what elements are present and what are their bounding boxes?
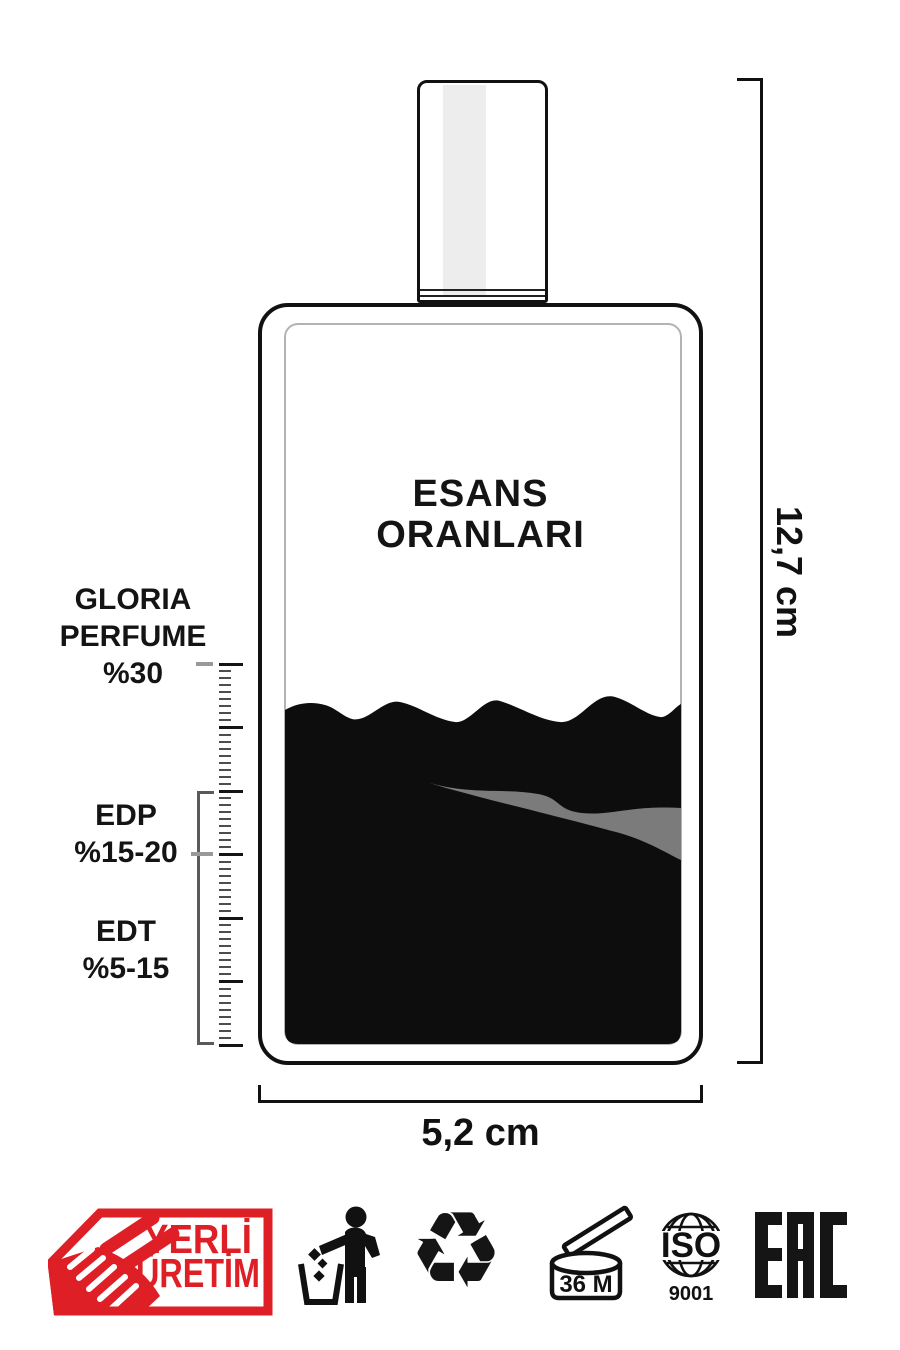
range-bracket-bottom-cap: [197, 1042, 214, 1045]
ruler-minor-tick: [219, 734, 231, 736]
recycle-icon: ♻: [398, 1192, 514, 1310]
range-bracket-mid-divider: [191, 852, 213, 856]
yerli-uretim-badge: YERLİ ÜRETİM: [48, 1203, 274, 1321]
label-gloria-perfume-30: GLORIA PERFUME %30: [30, 581, 236, 692]
ruler-minor-tick: [219, 959, 231, 961]
ruler-minor-tick: [219, 1016, 231, 1018]
ruler-minor-tick: [219, 691, 231, 693]
pao-lid: [563, 1207, 631, 1256]
pao-label: 36 M: [559, 1271, 612, 1298]
ruler-minor-tick: [219, 945, 231, 947]
ruler-minor-tick: [219, 719, 231, 721]
ruler-minor-tick: [219, 670, 231, 672]
ruler-minor-tick: [219, 839, 231, 841]
title-line-2: ORANLARI: [258, 515, 703, 556]
height-dimension-line: [760, 78, 763, 1064]
iso-label: ISO: [661, 1226, 721, 1265]
pao-jar-rim: [552, 1253, 620, 1273]
height-dimension-label: 12,7 cm: [769, 492, 809, 652]
ruler-minor-tick: [219, 1030, 231, 1032]
range-bracket-line: [197, 791, 200, 1045]
bottle-cap: [417, 80, 548, 303]
ruler-major-tick: [219, 980, 243, 983]
ruler-minor-tick: [219, 882, 231, 884]
ruler-minor-tick: [219, 924, 231, 926]
ruler-minor-tick: [219, 811, 231, 813]
ruler-minor-tick: [219, 988, 231, 990]
ruler-minor-tick: [219, 846, 231, 848]
cap-collar-line: [420, 295, 545, 297]
ruler-minor-tick: [219, 1023, 231, 1025]
cap-highlight-stripe: [443, 85, 486, 297]
tidyman-person: [308, 1207, 380, 1304]
ruler-minor-tick: [219, 748, 231, 750]
cap-collar-line: [420, 289, 545, 291]
ruler-minor-tick: [219, 1009, 231, 1011]
eac-icon: [755, 1212, 847, 1300]
ruler-minor-tick: [219, 966, 231, 968]
gloria-line-3: %30: [30, 655, 236, 692]
ruler-minor-tick: [219, 910, 231, 912]
liquid-fill: [285, 324, 681, 1044]
width-dimension-right-tick: [700, 1085, 703, 1103]
width-dimension-line: [258, 1100, 703, 1103]
percent30-level-marker: [196, 662, 213, 666]
ruler-minor-tick: [219, 684, 231, 686]
ruler-major-tick: [219, 726, 243, 729]
ruler-minor-tick: [219, 832, 231, 834]
ruler-minor-tick: [219, 769, 231, 771]
edt-line-2: %5-15: [30, 950, 222, 987]
ruler-major-tick: [219, 853, 243, 856]
edt-line-1: EDT: [30, 913, 222, 950]
ruler-minor-tick: [219, 938, 231, 940]
tidyman-bin: [301, 1264, 341, 1302]
ruler-minor-tick: [219, 896, 231, 898]
infographic-canvas: ESANS ORANLARI GLORIA PERFUME %30 EDP %1…: [0, 0, 900, 1350]
ruler-minor-tick: [219, 995, 231, 997]
period-after-opening-icon: 36 M: [538, 1205, 638, 1305]
ruler-minor-tick: [219, 931, 231, 933]
edp-line-1: EDP: [30, 797, 222, 834]
ruler-major-tick: [219, 790, 243, 793]
ruler-minor-tick: [219, 868, 231, 870]
iso-9001-icon: ISO 9001: [650, 1207, 732, 1303]
ruler-minor-tick: [219, 1002, 231, 1004]
ruler-minor-tick: [219, 776, 231, 778]
title-line-1: ESANS: [258, 474, 703, 515]
ruler-minor-tick: [219, 875, 231, 877]
ruler-minor-tick: [219, 698, 231, 700]
ruler-minor-tick: [219, 973, 231, 975]
ruler-minor-tick: [219, 804, 231, 806]
ruler-minor-tick: [219, 705, 231, 707]
iso-9001-label: 9001: [669, 1283, 714, 1303]
range-bracket-top-cap: [197, 791, 214, 794]
gloria-line-2: PERFUME: [30, 618, 236, 655]
ruler-minor-tick: [219, 1037, 231, 1039]
label-edt-5-15: EDT %5-15: [30, 913, 222, 987]
eac-letters: [755, 1212, 847, 1298]
liquid-wave-shape: [285, 696, 681, 1044]
ruler-minor-tick: [219, 755, 231, 757]
label-edp-15-20: EDP %15-20: [30, 797, 222, 871]
height-dimension-top-tick: [737, 78, 763, 81]
width-dimension-left-tick: [258, 1085, 261, 1103]
ruler-minor-tick: [219, 677, 231, 679]
ruler-minor-tick: [219, 861, 231, 863]
ruler-minor-tick: [219, 889, 231, 891]
ruler-minor-tick: [219, 783, 231, 785]
ruler-minor-tick: [219, 712, 231, 714]
ruler-minor-tick: [219, 952, 231, 954]
ruler-minor-tick: [219, 903, 231, 905]
ruler-minor-tick: [219, 818, 231, 820]
ruler-minor-tick: [219, 741, 231, 743]
width-dimension-label: 5,2 cm: [258, 1112, 703, 1155]
height-dimension-bottom-tick: [737, 1061, 763, 1064]
badge-text-line-2: ÜRETİM: [136, 1250, 260, 1296]
ruler-major-tick: [219, 917, 243, 920]
ruler-minor-tick: [219, 825, 231, 827]
ruler-minor-tick: [219, 797, 231, 799]
gloria-line-1: GLORIA: [30, 581, 236, 618]
ruler-major-tick: [219, 663, 243, 666]
bottle-title: ESANS ORANLARI: [258, 474, 703, 556]
ruler-minor-tick: [219, 762, 231, 764]
ruler-major-tick: [219, 1044, 243, 1047]
